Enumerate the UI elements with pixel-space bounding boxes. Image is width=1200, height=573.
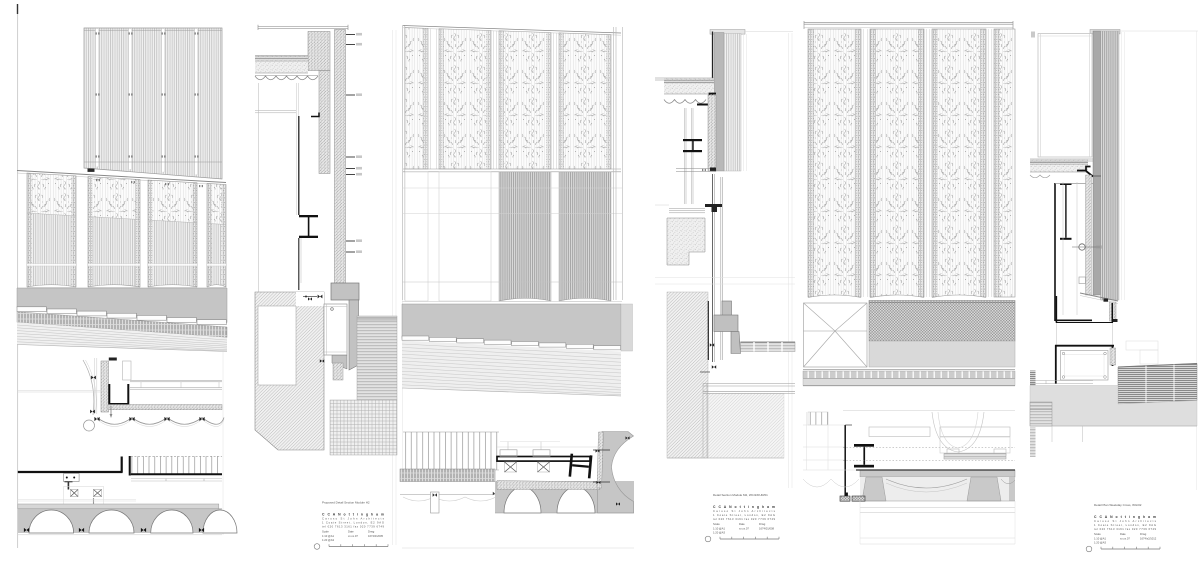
svg-text:C C A N o t t i n g h a m: C C A N o t t i n g h a m (1094, 515, 1156, 519)
svg-text:Proposed Detail Section Module: Proposed Detail Section Module H2 (322, 501, 370, 505)
svg-text:Caruso St John Architects: Caruso St John Architects (322, 517, 385, 521)
svg-text:Detail Plan Weekday Cross, WG/: Detail Plan Weekday Cross, WG/02 (1094, 503, 1142, 507)
svg-text:1674/01/005: 1674/01/005 (368, 534, 383, 538)
svg-text:Drwg: Drwg (368, 530, 375, 534)
svg-text:1:10 @A1: 1:10 @A1 (713, 527, 725, 531)
svg-text:1:20 @A3: 1:20 @A3 (713, 531, 725, 535)
svg-text:xx.xx.07: xx.xx.07 (1120, 537, 1130, 541)
svg-text:1 Coate Street, London, E2 9AG: 1 Coate Street, London, E2 9AG (713, 513, 775, 517)
svg-text:C C A N o t t i n g h a m: C C A N o t t i n g h a m (322, 513, 384, 517)
svg-text:Drwg: Drwg (759, 522, 766, 526)
svg-text:1:20 @A3: 1:20 @A3 (1094, 541, 1106, 545)
svg-text:Date: Date (348, 530, 354, 534)
svg-text:1674/01/008: 1674/01/008 (759, 527, 774, 531)
svg-text:C C A N o t t i n g h a m: C C A N o t t i n g h a m (713, 505, 775, 509)
svg-text:Scale: Scale (713, 522, 720, 526)
svg-text:1:10 @A1: 1:10 @A1 (1094, 537, 1106, 541)
svg-text:xx.xx.07: xx.xx.07 (348, 534, 358, 538)
svg-text:tel 020 7613 3161 fax 020 773: tel 020 7613 3161 fax 020 7739 6749 (713, 517, 776, 521)
svg-text:1:20 @A3: 1:20 @A3 (322, 538, 334, 542)
svg-text:1 Coate Street, London, E2 9AG: 1 Coate Street, London, E2 9AG (322, 521, 384, 525)
svg-text:Scale: Scale (322, 530, 329, 534)
svg-text:Drwg: Drwg (1140, 532, 1147, 536)
svg-text:tel 020 7613 3161 fax 020 773: tel 020 7613 3161 fax 020 7739 6749 (322, 525, 385, 529)
svg-text:Caruso St John Architects: Caruso St John Architects (713, 509, 776, 513)
svg-text:Scale: Scale (1094, 532, 1101, 536)
svg-text:tel 020 7613 3161 fax 020 773: tel 020 7613 3161 fax 020 7739 6749 (1094, 527, 1157, 531)
svg-text:xx.xx.07: xx.xx.07 (739, 527, 749, 531)
svg-text:Date: Date (1120, 532, 1126, 536)
svg-text:Detail Section Module M2, WC/2: Detail Section Module M2, WC/2/DUR/01 (713, 493, 768, 497)
svg-text:1:10 @A1: 1:10 @A1 (322, 534, 334, 538)
svg-text:Caruso St John Architects: Caruso St John Architects (1094, 519, 1157, 523)
svg-text:1674/s2/1012: 1674/s2/1012 (1140, 537, 1157, 541)
svg-text:1 Coate Street, London, E2 9AG: 1 Coate Street, London, E2 9AG (1094, 523, 1156, 527)
svg-text:Date: Date (739, 522, 745, 526)
